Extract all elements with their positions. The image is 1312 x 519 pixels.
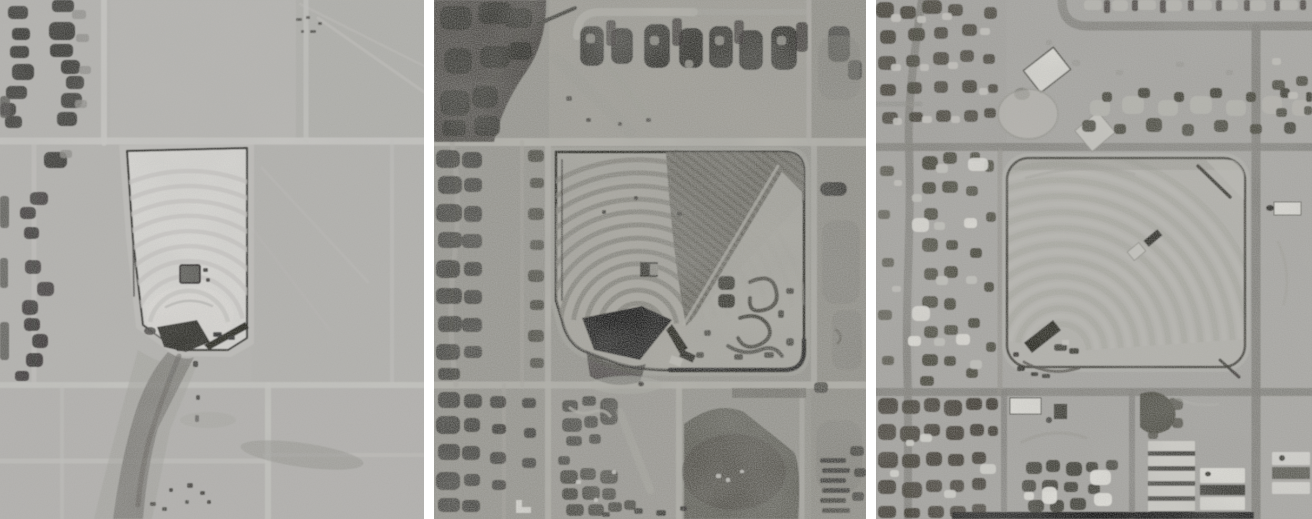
aerial-photo-middle	[434, 0, 866, 519]
film-grain-overlay	[434, 0, 866, 519]
aerial-photo-right	[876, 0, 1312, 519]
film-grain-overlay	[0, 0, 424, 519]
aerial-photo-left	[0, 0, 424, 519]
photo-comparison-strip	[0, 0, 1312, 519]
film-grain-overlay	[876, 0, 1312, 519]
